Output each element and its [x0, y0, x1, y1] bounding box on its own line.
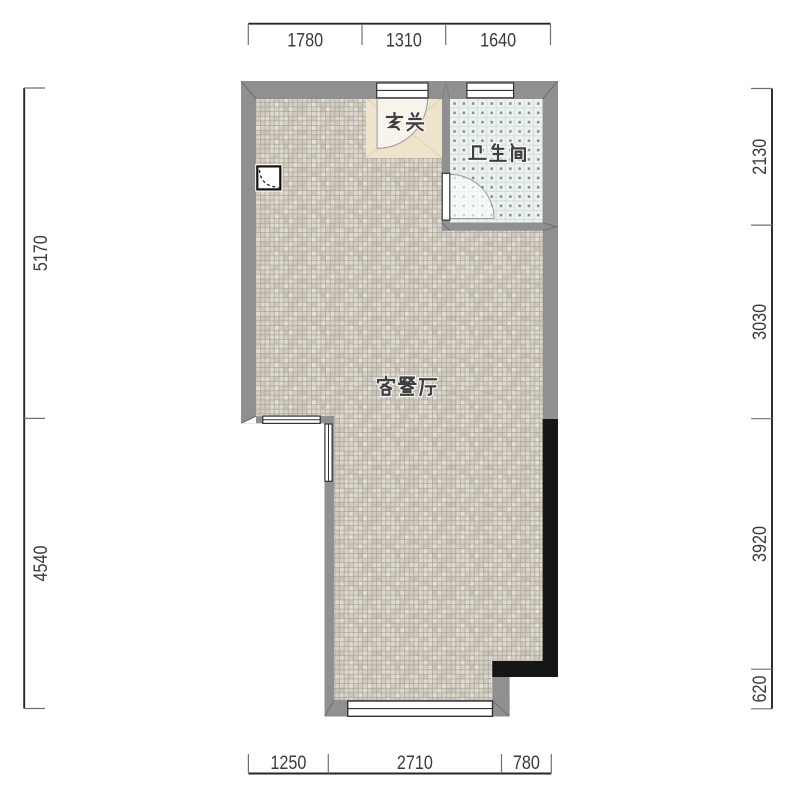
svg-text:3920: 3920 [750, 526, 771, 562]
svg-text:4540: 4540 [31, 546, 52, 582]
svg-text:1310: 1310 [386, 30, 422, 51]
svg-text:3030: 3030 [750, 304, 771, 340]
svg-text:1640: 1640 [480, 30, 516, 51]
svg-text:5170: 5170 [31, 235, 52, 271]
svg-text:780: 780 [513, 753, 540, 774]
svg-text:2130: 2130 [750, 139, 771, 175]
svg-text:1780: 1780 [287, 30, 323, 51]
svg-text:1250: 1250 [270, 753, 306, 774]
svg-text:620: 620 [750, 676, 771, 703]
svg-text:2710: 2710 [397, 753, 433, 774]
